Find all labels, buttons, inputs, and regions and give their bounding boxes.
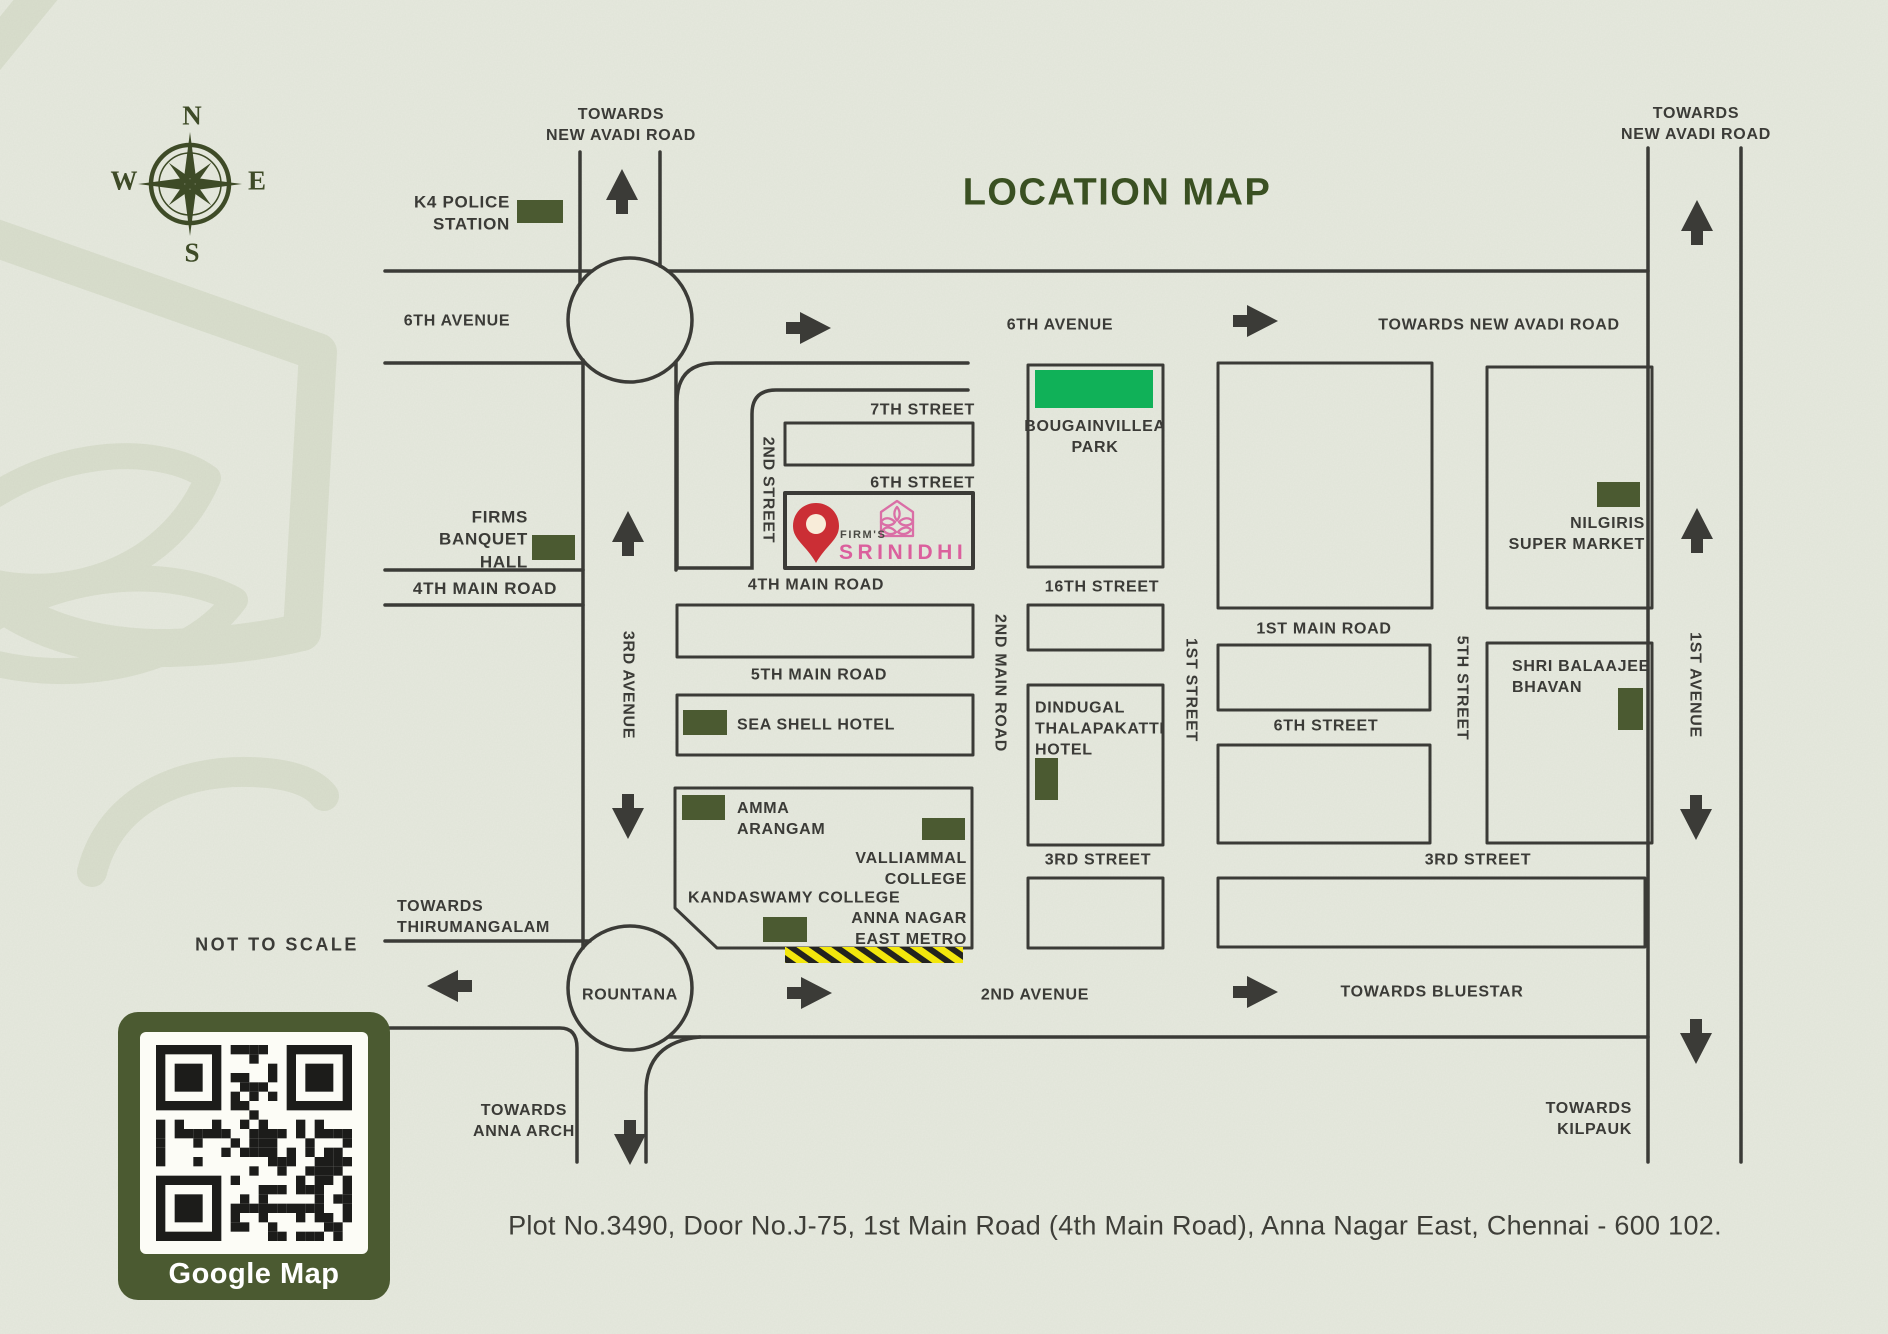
road-label-3rd-avenue: 3RD AVENUE [617, 631, 638, 739]
road-label-towards-new-avadi-top-right: TOWARDS NEW AVADI ROAD [1621, 103, 1771, 145]
address-line: Plot No.3490, Door No.J-75, 1st Main Roa… [508, 1211, 1722, 1242]
poi-label-nilgiris-super-market: NILGIRIS SUPER MARKET [1509, 513, 1645, 555]
page-title: LOCATION MAP [963, 172, 1272, 215]
compass-west-label: W [111, 166, 138, 197]
road-label-1st-avenue: 1ST AVENUE [1684, 632, 1705, 738]
poi-label-bougainvillea-park: BOUGAINVILLEA PARK [1024, 416, 1166, 458]
road-label-3rd-street-west: 3RD STREET [1045, 849, 1152, 870]
poi-label-anna-nagar-east-metro: ANNA NAGAR EAST METRO [851, 908, 967, 950]
poi-label-amma-arangam: AMMA ARANGAM [737, 798, 825, 840]
road-label-5th-main-road: 5TH MAIN ROAD [751, 664, 887, 685]
poi-label-k4-police-station: K4 POLICE STATION [414, 192, 510, 237]
road-label-rountana: ROUNTANA [582, 984, 678, 1005]
compass-east-label: E [248, 166, 266, 197]
road-label-towards-new-avadi-top: TOWARDS NEW AVADI ROAD [546, 104, 696, 146]
google-map-qr-card: Google Map [118, 1012, 390, 1300]
road-label-2nd-street: 2ND STREET [757, 437, 778, 544]
dindugal-marker [1035, 758, 1058, 800]
poi-label-sea-shell-hotel: SEA SHELL HOTEL [737, 714, 895, 735]
road-label-towards-thirumangalam: TOWARDS THIRUMANGALAM [397, 896, 550, 938]
bougainvillea-park-marker [1035, 370, 1153, 408]
road-label-6th-street-a: 6TH STREET [870, 472, 975, 493]
road-label-3rd-street-east: 3RD STREET [1425, 849, 1532, 870]
amma-arangam-marker [682, 795, 725, 820]
road-label-towards-bluestar: TOWARDS BLUESTAR [1340, 981, 1523, 1002]
road-label-4th-main-road-west: 4TH MAIN ROAD [413, 578, 557, 600]
road-label-2nd-avenue: 2ND AVENUE [981, 984, 1089, 1005]
road-label-5th-street: 5TH STREET [1451, 636, 1472, 741]
kandaswamy-marker [763, 917, 807, 942]
poi-label-kandaswamy-college: KANDASWAMY COLLEGE [688, 887, 900, 908]
k4-police-marker [517, 200, 563, 223]
road-label-6th-avenue-west: 6TH AVENUE [404, 310, 511, 331]
poi-label-dindugal-thalapakatti-hotel: DINDUGAL THALAPAKATTI HOTEL [1035, 697, 1165, 760]
poi-label-firms-banquet-hall: FIRMS BANQUET HALL [439, 506, 528, 573]
scale-note: NOT TO SCALE [195, 935, 359, 956]
compass-south-label: S [184, 238, 199, 269]
poi-label-valliammal-college: VALLIAMMAL COLLEGE [855, 848, 967, 890]
road-label-1st-main-road: 1ST MAIN ROAD [1256, 618, 1391, 639]
sea-shell-marker [683, 710, 727, 735]
road-label-1st-street: 1ST STREET [1180, 638, 1201, 742]
brand-name-label: SRINIDHI [839, 541, 967, 565]
compass-north-label: N [182, 101, 202, 132]
banquet-hall-marker [532, 535, 575, 560]
qr-code-icon [156, 1045, 352, 1241]
nilgiris-marker [1597, 482, 1640, 507]
road-label-6th-avenue-center: 6TH AVENUE [1007, 314, 1114, 335]
road-label-16th-street: 16TH STREET [1045, 576, 1159, 597]
road-label-towards-new-avadi-east: TOWARDS NEW AVADI ROAD [1378, 314, 1619, 335]
poi-label-shri-balaajee-bhavan: SHRI BALAAJEE BHAVAN [1512, 656, 1650, 698]
brand-prefix-label: FIRM'S [840, 529, 886, 541]
location-map-page: LOCATION MAP N S W E TOWARDS NEW AVADI R… [0, 0, 1888, 1334]
qr-caption: Google Map [118, 1258, 390, 1291]
road-label-towards-anna-arch: TOWARDS ANNA ARCH [473, 1100, 575, 1142]
road-label-4th-main-road-center: 4TH MAIN ROAD [748, 574, 884, 595]
valliammal-marker [922, 818, 965, 840]
road-label-7th-street: 7TH STREET [870, 399, 975, 420]
road-label-2nd-main-road: 2ND MAIN ROAD [989, 614, 1010, 752]
road-label-6th-street-b: 6TH STREET [1274, 715, 1379, 736]
road-label-towards-kilpauk: TOWARDS KILPAUK [1546, 1098, 1632, 1140]
qr-code [140, 1032, 368, 1254]
